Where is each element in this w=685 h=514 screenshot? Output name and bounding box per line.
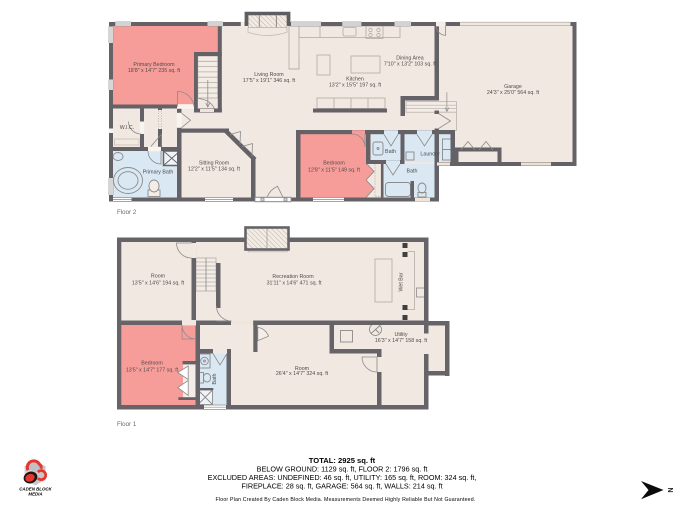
svg-text:Floor 1: Floor 1 xyxy=(117,421,137,428)
svg-text:Bedroom: Bedroom xyxy=(141,361,163,367)
svg-text:7'10" x 13'2" 103 sq. ft: 7'10" x 13'2" 103 sq. ft xyxy=(384,62,437,68)
svg-text:W.I.C.: W.I.C. xyxy=(120,125,134,131)
svg-text:26'4" x 14'7" 324 sq. ft: 26'4" x 14'7" 324 sq. ft xyxy=(276,371,329,377)
svg-text:18'8" x 14'7" 235 sq. ft: 18'8" x 14'7" 235 sq. ft xyxy=(128,68,181,74)
svg-text:13'5" x 14'7" 177 sq. ft: 13'5" x 14'7" 177 sq. ft xyxy=(126,368,179,374)
svg-text:Bath: Bath xyxy=(212,374,218,385)
svg-text:Primary Bath: Primary Bath xyxy=(143,170,174,176)
svg-text:Wet Bar: Wet Bar xyxy=(399,272,405,291)
svg-text:16'3" x 14'7" 158 sq. ft: 16'3" x 14'7" 158 sq. ft xyxy=(375,338,428,344)
svg-text:Bedroom: Bedroom xyxy=(323,161,345,167)
svg-text:12'8" x 11'5" 149 sq. ft: 12'8" x 11'5" 149 sq. ft xyxy=(308,168,360,174)
svg-text:N: N xyxy=(666,487,673,492)
svg-text:Bath: Bath xyxy=(385,149,396,155)
svg-text:13'2" x 15'5" 197 sq. ft: 13'2" x 15'5" 197 sq. ft xyxy=(329,83,382,89)
svg-text:Laundry: Laundry xyxy=(420,152,439,158)
svg-text:13'5" x 14'6" 194 sq. ft: 13'5" x 14'6" 194 sq. ft xyxy=(132,281,185,287)
svg-text:31'11" x 14'6" 471 sq. ft: 31'11" x 14'6" 471 sq. ft xyxy=(267,281,322,287)
svg-text:Floor 2: Floor 2 xyxy=(117,209,137,216)
svg-text:Floor Plan Created By Caden Bl: Floor Plan Created By Caden Block Media.… xyxy=(216,497,476,503)
svg-text:12'2" x 11'5" 134 sq. ft: 12'2" x 11'5" 134 sq. ft xyxy=(188,167,240,173)
svg-text:17'5" x 19'1" 346 sq. ft: 17'5" x 19'1" 346 sq. ft xyxy=(243,78,296,84)
svg-text:MEDIA: MEDIA xyxy=(28,492,42,497)
svg-text:24'3" x 25'0" 564 sq. ft: 24'3" x 25'0" 564 sq. ft xyxy=(487,90,540,96)
svg-text:Room: Room xyxy=(151,274,166,280)
svg-text:Bath: Bath xyxy=(407,169,418,175)
svg-text:FIREPLACE: 28 sq. ft, GARAGE:: FIREPLACE: 28 sq. ft, GARAGE: 564 sq. ft… xyxy=(241,482,442,491)
svg-text:Recreation Room: Recreation Room xyxy=(272,274,314,280)
